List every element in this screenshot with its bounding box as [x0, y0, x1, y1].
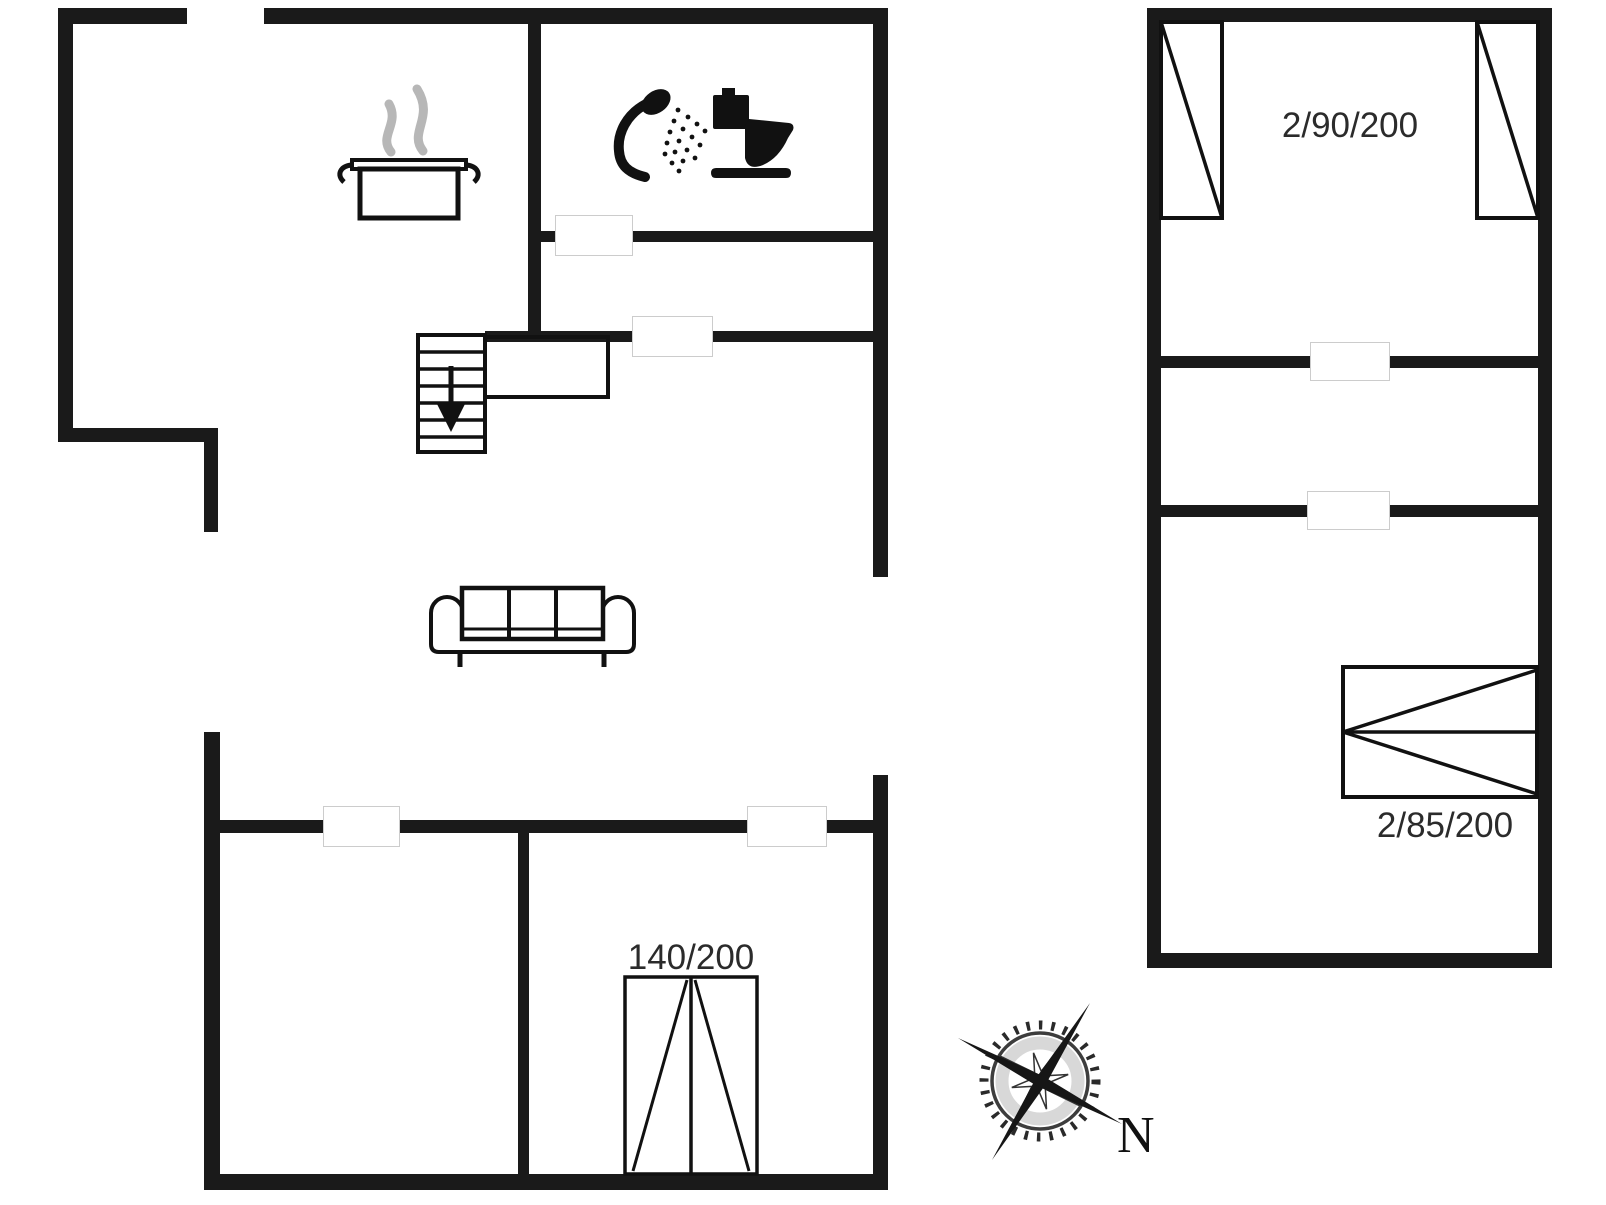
bed-size-label-twin: 2/90/200 [1250, 106, 1450, 146]
shower-icon [619, 84, 708, 177]
floor-plan-symbols [0, 0, 1606, 1205]
stair-landing [485, 337, 608, 397]
sofa-icon [431, 588, 634, 667]
floor-plan: 140/200 2/90/200 2/85/200 N [0, 0, 1606, 1205]
cooking-pot-icon [340, 160, 478, 218]
bunk-bed-icon [1343, 667, 1537, 797]
bed-size-label-bunk: 2/85/200 [1345, 806, 1545, 846]
stairs-down-icon [418, 335, 485, 452]
single-bed-icon [1477, 22, 1538, 218]
compass-north-label: N [1117, 1106, 1155, 1165]
toilet-icon [711, 88, 794, 178]
bed-size-label-double: 140/200 [611, 938, 771, 978]
single-bed-icon [1161, 22, 1222, 218]
double-bed-icon [625, 977, 757, 1174]
steam-icon [387, 89, 424, 152]
compass-rose-icon [958, 1003, 1122, 1160]
